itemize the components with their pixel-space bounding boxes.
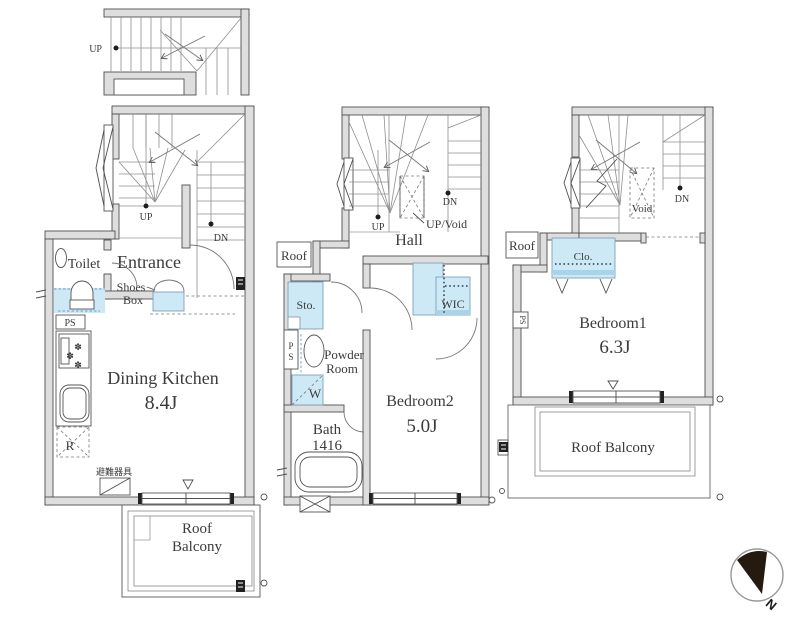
closet: Clo. xyxy=(552,238,615,293)
sto-area-door-arc xyxy=(331,282,362,313)
svg-text:✽: ✽ xyxy=(66,352,74,362)
escape-label: 避難器具 xyxy=(96,466,132,478)
compass: N xyxy=(731,549,783,613)
washbasin-icon xyxy=(56,249,67,268)
bedroom1-window xyxy=(569,391,664,403)
f1-balcony-label-1: Roof xyxy=(182,521,212,537)
f3-roof-label: Roof xyxy=(509,238,536,253)
attic-up-label: UP xyxy=(89,44,102,55)
stair-window-f2 xyxy=(337,158,353,210)
stair-window-f1 xyxy=(96,125,113,211)
washer-label: W xyxy=(309,386,322,401)
closet-label: Clo. xyxy=(574,251,593,263)
bedroom1-size-label: 6.3J xyxy=(599,337,630,358)
f1-up-point xyxy=(144,204,149,209)
f3-ps-label: PS xyxy=(518,316,527,325)
wic-door-arc xyxy=(436,318,477,359)
wic-label: WIC xyxy=(441,297,464,311)
hall-label: Hall xyxy=(395,232,423,249)
f3-balcony-label: Roof Balcony xyxy=(571,440,655,456)
roof-stair-fragment: UP xyxy=(89,9,249,95)
washer-space: W xyxy=(292,375,323,405)
floorplan-drawing: UP xyxy=(0,0,800,618)
escape-equipment: 避難器具 xyxy=(96,466,132,495)
dk-label: Dining Kitchen xyxy=(107,368,218,388)
f1-balcony-label-2: Balcony xyxy=(172,539,222,555)
roof-balcony-f3: Roof Balcony xyxy=(498,405,710,498)
staircase-f3: DN xyxy=(579,115,705,233)
floor-3: Roof xyxy=(498,107,723,500)
floorplan-canvas: UP xyxy=(0,0,800,618)
entrance-label: Entrance xyxy=(117,252,181,272)
drain-f1 xyxy=(236,580,245,592)
kitchen-counter: ✽ ✽ ✽ xyxy=(56,331,91,426)
f1-up-label: UP xyxy=(140,212,153,223)
bedroom2-size-label: 5.0J xyxy=(406,416,437,437)
storage-room: Sto. xyxy=(288,282,323,329)
toilet-room: Toilet xyxy=(54,249,105,314)
svg-text:✽: ✽ xyxy=(74,361,82,371)
f1-dn-point xyxy=(209,222,214,227)
toilet-label: Toilet xyxy=(68,257,101,272)
powder-sink-icon xyxy=(304,335,324,367)
hanger-mark xyxy=(600,279,612,293)
f3-dn-point xyxy=(678,186,683,191)
f2-upvoid-label: UP/Void xyxy=(426,217,467,231)
powder-label-2: Room xyxy=(326,361,358,376)
entry-mark-f1 xyxy=(183,480,193,489)
bedroom2-door-arc xyxy=(370,288,412,330)
f2-up-point xyxy=(376,215,381,220)
refrigerator-space: R xyxy=(57,427,89,457)
f2-dn-label: DN xyxy=(443,197,457,208)
roof-balcony-f1: Roof Balcony xyxy=(122,505,260,597)
void-shaft-f3: Void xyxy=(630,168,654,218)
f3-dn-label: DN xyxy=(675,194,689,205)
f2-ps-label-2: S xyxy=(288,352,293,362)
bedroom2-label: Bedroom2 xyxy=(386,393,454,410)
wic-closet: WIC xyxy=(413,263,470,315)
attic-up-point xyxy=(114,46,119,51)
svg-text:✽: ✽ xyxy=(74,343,82,353)
fridge-label: R xyxy=(66,438,75,453)
bath-label: Bath xyxy=(313,422,342,438)
drain-f3 xyxy=(499,442,508,452)
stair-window-f3 xyxy=(564,158,580,208)
f1-ps-label: PS xyxy=(64,318,75,329)
f2-up-label: UP xyxy=(372,222,385,233)
powder-label-1: Powder xyxy=(324,347,364,362)
shoes-label-1: Shoes xyxy=(117,280,146,294)
f2-ps-label-1: P xyxy=(288,341,293,351)
dk-window xyxy=(138,493,234,504)
shoes-box xyxy=(153,280,184,311)
f2-dn-point xyxy=(446,191,451,196)
bedroom2-window xyxy=(369,493,461,504)
shoes-label-2: Box xyxy=(123,293,143,307)
f3-void-label: Void xyxy=(632,203,653,215)
sto-label: Sto. xyxy=(296,298,315,312)
dk-size-label: 8.4J xyxy=(145,392,178,414)
bedroom1-label: Bedroom1 xyxy=(579,315,647,332)
f1-dn-label: DN xyxy=(214,233,228,244)
floor-2: Roof xyxy=(277,107,495,512)
hanger-mark xyxy=(556,279,568,293)
bath-door-arc xyxy=(344,412,364,432)
f2-roof-label: Roof xyxy=(281,248,308,263)
entry-mark-f3 xyxy=(608,381,618,389)
floor-1: UP DN Toilet PS ✽ ✽ ✽ xyxy=(36,106,267,597)
bath-window xyxy=(300,496,330,512)
